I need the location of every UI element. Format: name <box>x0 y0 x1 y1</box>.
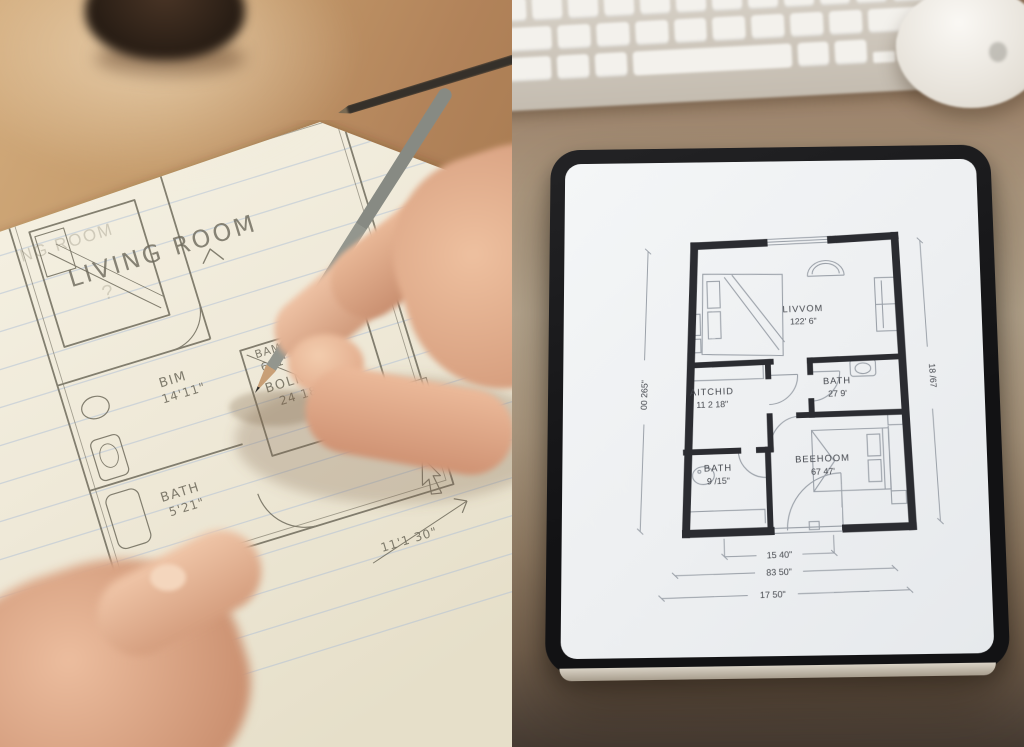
dim-left-label: 00 265" <box>639 380 650 410</box>
living-room-dim: 122' 6" <box>790 316 817 327</box>
dim-right-label: 18 /67 <box>927 363 939 388</box>
tablet-screen: LIVVOM 122' 6" AITCHID 11 2 18" BATH 27 … <box>561 159 995 659</box>
holding-hand-fingernail <box>150 564 186 591</box>
tablet: LIVVOM 122' 6" AITCHID 11 2 18" BATH 27 … <box>545 144 1011 675</box>
dim-bottom-mid-label: 83 50" <box>766 566 792 577</box>
floorplan-furniture <box>683 234 908 536</box>
spacebar <box>632 43 792 75</box>
tablet-photo-panel: LIVVOM 122' 6" AITCHID 11 2 18" BATH 27 … <box>512 0 1024 747</box>
bedroom-label: BEEHOOM <box>795 452 850 464</box>
dim-bottom-outer-label: 17 50" <box>760 589 786 600</box>
kitchen-label: AITCHID <box>690 386 734 398</box>
keyboard <box>512 0 955 112</box>
bedroom-dim: 67 47' <box>811 466 836 477</box>
apple-logo <box>989 42 1007 62</box>
dim-bottom-inner-label: 15 40" <box>766 549 792 560</box>
kitchen-dim: 11 2 18" <box>696 399 728 410</box>
bath-lower-dim: 9 /15" <box>707 475 730 486</box>
bath-upper-dim: 27 9' <box>828 388 848 399</box>
mouse <box>896 0 1024 108</box>
living-room-label: LIVVOM <box>782 303 823 314</box>
bath-lower-label: BATH <box>704 462 733 473</box>
floorplan-svg: LIVVOM 122' 6" AITCHID 11 2 18" BATH 27 … <box>561 159 995 659</box>
bath-upper-label: BATH <box>823 375 851 386</box>
photo-canvas: NG ROOM ? <box>0 0 1024 747</box>
sketch-photo-panel: NG ROOM ? <box>0 0 512 747</box>
